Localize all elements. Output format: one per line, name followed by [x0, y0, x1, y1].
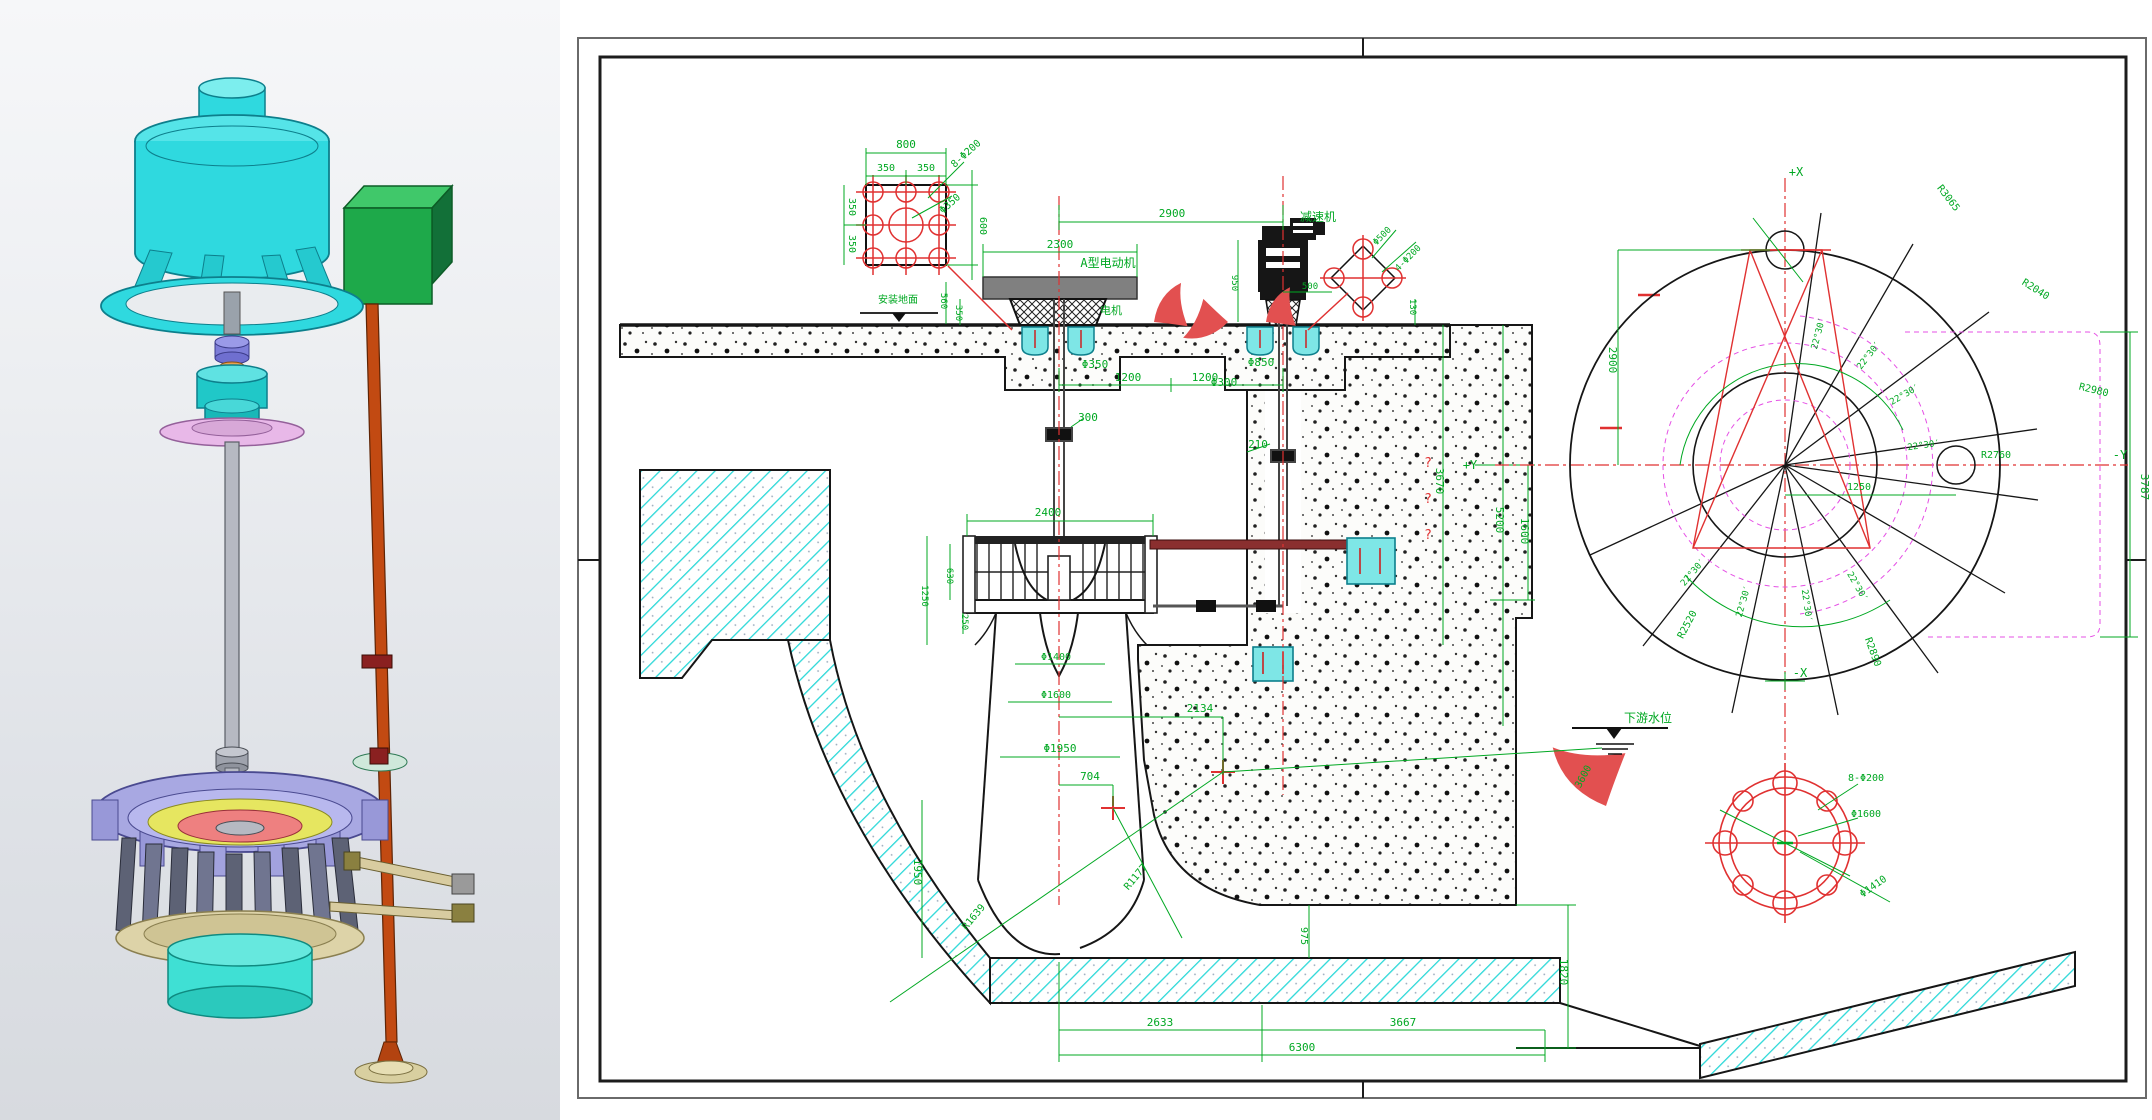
dim-label: 350: [846, 198, 857, 216]
dim-label: 500: [1302, 282, 1318, 292]
upper-brace: [1150, 540, 1352, 549]
dim-label: 安装地面: [878, 293, 918, 306]
dim-label: ?: [1424, 492, 1432, 507]
dim-label: 1250: [1847, 482, 1871, 493]
installation-drawing: 8003503508-Φ200Φ35060035035029002300A型电动…: [560, 0, 2152, 1120]
stuffing-box: [160, 365, 304, 446]
dim-label: Φ850: [1248, 356, 1275, 369]
dim-label: 3667: [1390, 1016, 1417, 1029]
dim-label: 1820: [1557, 959, 1570, 986]
dim-label: Φ1600: [1041, 690, 1071, 701]
dim-label: 350: [877, 163, 895, 174]
dim-label: 600: [977, 217, 988, 235]
dim-label: ?: [1424, 528, 1432, 543]
dim-label: 减速机: [1300, 210, 1336, 224]
dim-label: 2633: [1147, 1016, 1174, 1029]
dim-label: 1600: [1518, 518, 1531, 545]
dim-label: 1200: [1115, 371, 1142, 384]
dim-label: 704: [1080, 770, 1100, 783]
dim-label: 800: [896, 138, 916, 151]
dim-label: ?: [1424, 456, 1432, 471]
dim-label: 2134: [1187, 702, 1214, 715]
dim-label: +Y: [1463, 458, 1478, 472]
dim-label: 电机: [1100, 303, 1122, 317]
dim-label: 975: [1298, 927, 1309, 945]
dim-label: Φ1400: [1041, 652, 1071, 663]
dim-label: 630: [944, 568, 954, 584]
dim-label: Φ350: [1082, 358, 1109, 371]
dim-label: 1250: [919, 585, 929, 607]
dim-label: 950: [1229, 275, 1239, 291]
dim-label: 5200: [1493, 507, 1506, 534]
dim-label: 250: [959, 614, 969, 630]
dim-label: -Y: [2113, 448, 2128, 462]
dim-label: 350: [846, 235, 857, 253]
3d-turbine-assembly: [0, 0, 560, 1120]
dim-label: 300: [1078, 411, 1098, 424]
dim-label: 3670: [1433, 468, 1446, 495]
dim-label: A型电动机: [1080, 256, 1135, 270]
dim-label: 2300: [1047, 238, 1074, 251]
dim-label: 1950: [911, 859, 924, 886]
control-box: [344, 186, 452, 304]
3d-render-panel: [0, 0, 560, 1120]
cad-drawing-panel: 8003503508-Φ200Φ35060035035029002300A型电动…: [560, 0, 2152, 1120]
dim-label: 210: [1248, 438, 1268, 451]
dim-label: 下游水位: [1624, 710, 1672, 725]
dim-label: 2900: [1159, 207, 1186, 220]
dim-label: Φ300: [1211, 376, 1238, 389]
dim-label: 6300: [1289, 1041, 1316, 1054]
dim-label: 2900: [1606, 347, 1619, 374]
motor-assembly: [101, 78, 363, 335]
control-rod: [353, 304, 427, 1083]
dim-label: -X: [1793, 666, 1808, 680]
motor-stand: [1010, 299, 1106, 325]
dim-label: 8-Φ200: [1848, 773, 1884, 784]
dim-label: 130: [1407, 299, 1417, 315]
suction-drum: [168, 934, 312, 1018]
dim-label: +X: [1789, 165, 1804, 179]
screenshot-root: { "colors": { "green": "#00a822", "red":…: [0, 0, 2152, 1120]
dim-label: 2400: [1035, 506, 1062, 519]
dim-label: Φ1600: [1851, 809, 1881, 820]
dim-label: 3787: [2138, 474, 2151, 501]
dim-label: 350: [953, 305, 963, 321]
dim-label: 560: [938, 293, 948, 309]
dim-label: Φ1950: [1043, 742, 1076, 755]
dim-label: R2760: [1981, 450, 2011, 461]
motor-beam: [983, 277, 1137, 299]
dim-label: 350: [917, 163, 935, 174]
